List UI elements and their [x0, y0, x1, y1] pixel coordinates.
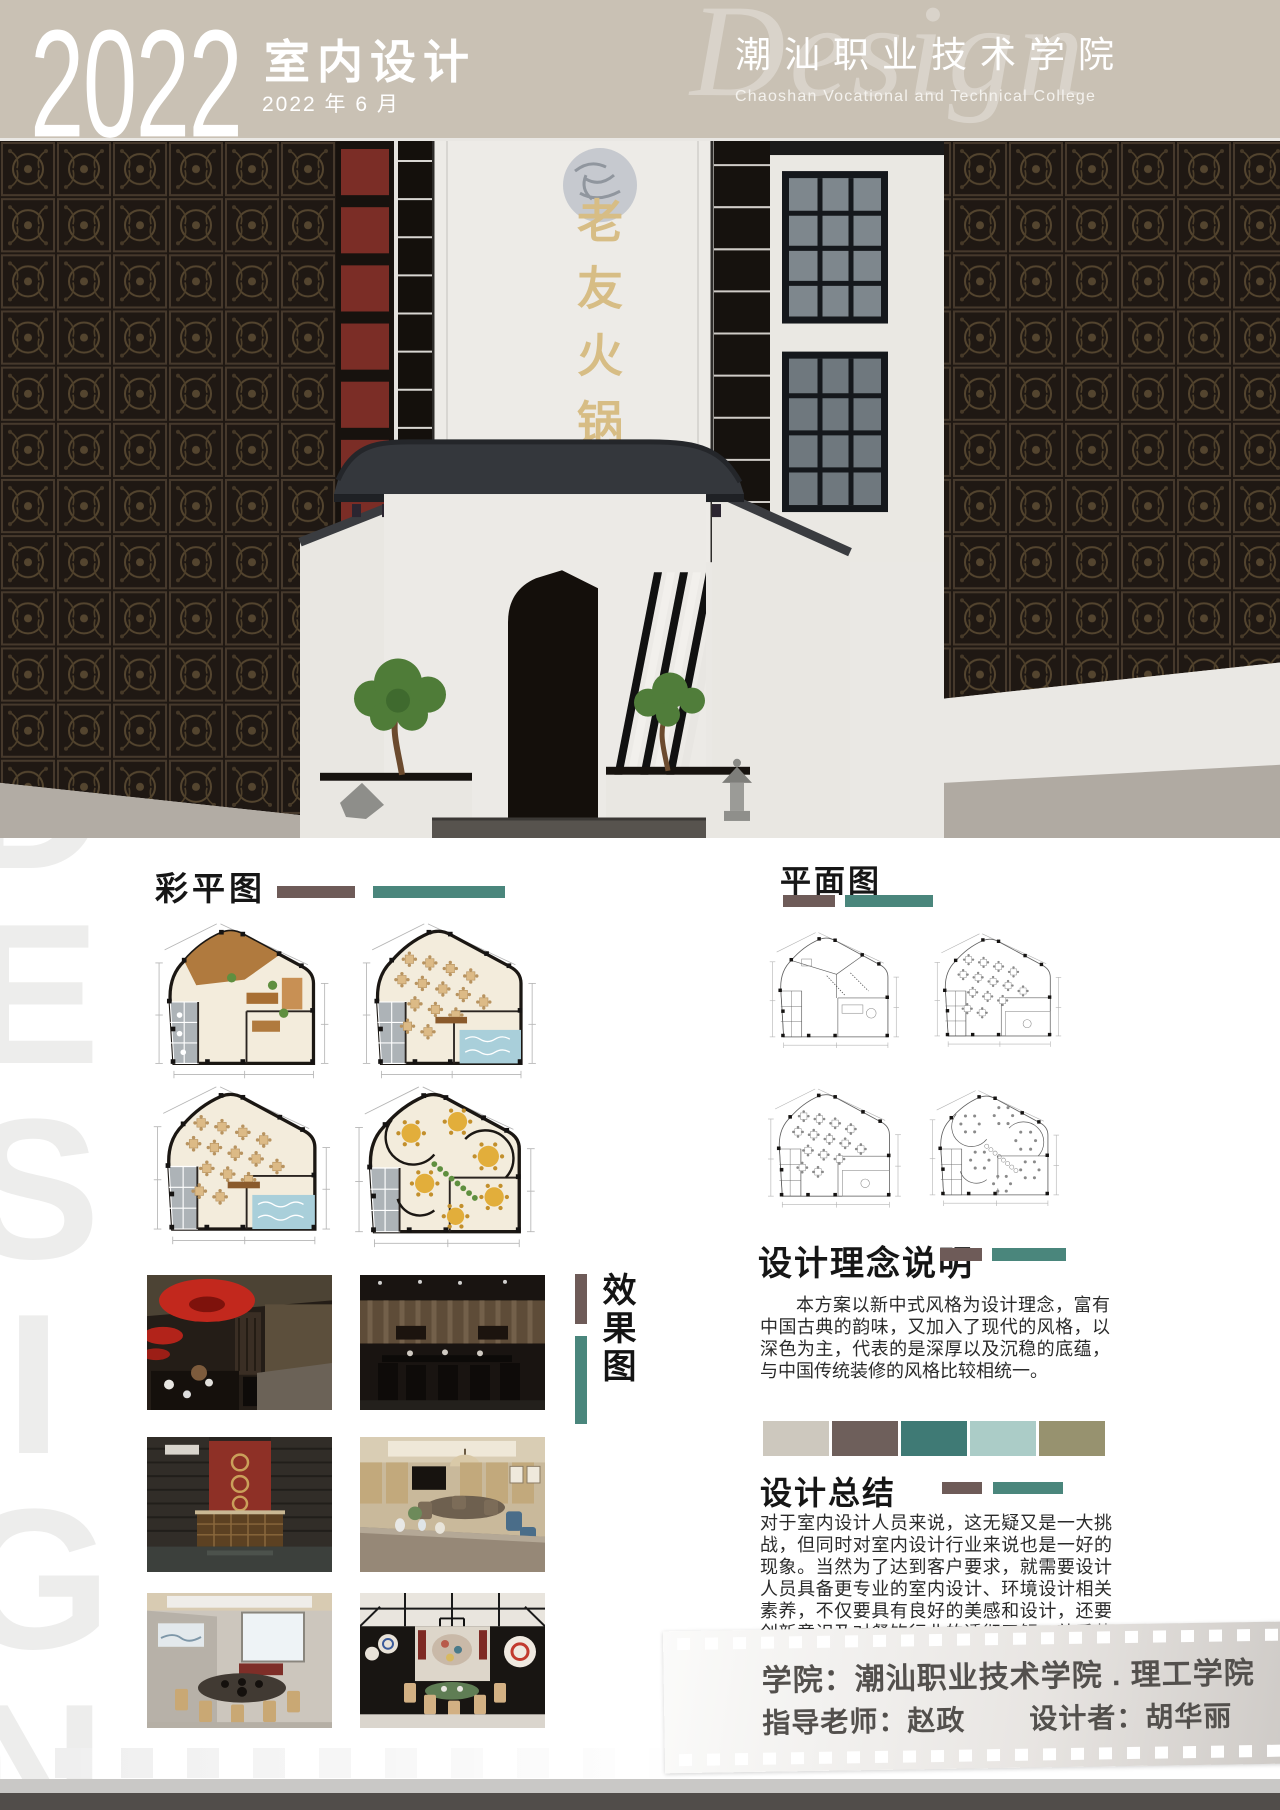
render-bright-dining	[360, 1437, 545, 1572]
color-plan-4	[338, 1085, 548, 1251]
building-facade-illustration: 老友火锅店	[0, 141, 1280, 838]
color-plan-title: 彩平图	[155, 862, 266, 910]
accent-bar-teal	[992, 1248, 1066, 1261]
palette-swatch-2	[832, 1421, 898, 1456]
cad-plan-1-drawing	[760, 920, 906, 1062]
palette-swatch-1	[763, 1421, 829, 1456]
color-plan-2-drawing	[345, 922, 550, 1082]
palette-swatch-4	[970, 1421, 1036, 1456]
cad-plan-3	[758, 1076, 908, 1222]
footer-band-dark	[0, 1793, 1280, 1810]
svg-text:友: 友	[577, 263, 623, 314]
color-plan-1-drawing	[140, 922, 340, 1082]
cad-plan-4-drawing	[920, 1076, 1066, 1222]
render-image-6	[360, 1593, 545, 1728]
accent-bar-brown	[940, 1248, 982, 1261]
render-image-1	[147, 1275, 332, 1410]
design-poster: Design 2022 室内设计 2022 年 6 月 潮汕职业技术学院 Cha…	[0, 0, 1280, 1810]
render-image-4	[360, 1437, 545, 1572]
design-watermark-vertical: DESIGN	[0, 688, 108, 1810]
color-plan-3-drawing	[140, 1085, 340, 1248]
summary-title: 设计总结	[760, 1468, 896, 1514]
cad-plan-4	[920, 1076, 1066, 1222]
cad-plan-2	[925, 920, 1068, 1062]
accent-bar-teal	[845, 895, 933, 907]
footer-band-light	[0, 1779, 1280, 1793]
film-perforations-top	[677, 1628, 1280, 1650]
accent-bar-brown	[942, 1482, 982, 1494]
cad-plan-3-drawing	[758, 1076, 908, 1222]
college-name-cn: 潮汕职业技术学院	[735, 26, 1095, 78]
render-dark-dining-hall	[360, 1275, 545, 1410]
film-perforations-bottom	[679, 1744, 1280, 1766]
building-photo: 老友火锅店	[0, 138, 1280, 838]
palette-swatch-3	[901, 1421, 967, 1456]
credit-college: 学院：潮汕职业技术学院 . 理工学院	[761, 1648, 1255, 1700]
svg-text:老: 老	[577, 196, 623, 247]
color-plan-2	[345, 922, 550, 1082]
accent-bar-brown	[783, 895, 835, 907]
color-plan-4-drawing	[338, 1085, 548, 1251]
credit-advisor: 指导老师：赵政	[762, 1705, 965, 1739]
page-title: 室内设计	[264, 26, 476, 92]
accent-bar-teal	[373, 886, 505, 898]
credit-designer: 设计者：胡华丽	[1029, 1700, 1232, 1734]
cad-plan-1	[760, 920, 906, 1062]
college-name-en: Chaoshan Vocational and Technical Colleg…	[735, 88, 1095, 106]
svg-text:火: 火	[577, 331, 623, 382]
render-image-3	[147, 1437, 332, 1572]
header: Design 2022 室内设计 2022 年 6 月 潮汕职业技术学院 Cha…	[0, 0, 1280, 138]
render-reception	[147, 1437, 332, 1572]
render-private-room	[147, 1593, 332, 1728]
render-image-5	[147, 1593, 332, 1728]
renders-title: 效果图	[592, 1272, 641, 1386]
render-lantern-dining	[147, 1275, 332, 1410]
cad-plan-2-drawing	[925, 920, 1068, 1062]
render-image-2	[360, 1275, 545, 1410]
accent-bar-brown-vertical	[575, 1274, 587, 1324]
header-date: 2022 年 6 月	[262, 88, 400, 118]
college-block: 潮汕职业技术学院 Chaoshan Vocational and Technic…	[735, 26, 1095, 106]
palette-swatch-5	[1039, 1421, 1105, 1456]
accent-bar-brown	[277, 886, 355, 898]
credit-people: 指导老师：赵政设计者：胡华丽	[762, 1694, 1233, 1741]
faint-film-strip	[55, 1748, 745, 1778]
color-palette	[763, 1421, 1105, 1456]
header-year: 2022	[30, 0, 241, 138]
concept-body: 本方案以新中式风格为设计理念，富有中国古典的韵味，又加入了现代的风格，以深色为主…	[760, 1294, 1110, 1382]
render-dark-wall-room	[360, 1593, 545, 1728]
accent-bar-teal	[993, 1482, 1063, 1494]
color-plan-3	[140, 1085, 340, 1248]
accent-bar-teal-vertical	[575, 1336, 587, 1424]
color-plan-1	[140, 922, 340, 1082]
credits-film-strip: 学院：潮汕职业技术学院 . 理工学院 指导老师：赵政设计者：胡华丽	[663, 1621, 1280, 1774]
